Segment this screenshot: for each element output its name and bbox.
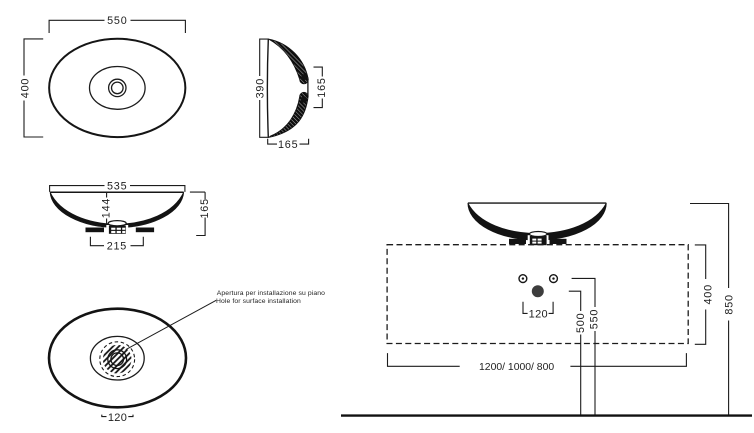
svg-text:165: 165 bbox=[316, 77, 328, 97]
svg-text:Apertura per installazione su: Apertura per installazione su piano bbox=[217, 290, 325, 297]
svg-text:550: 550 bbox=[588, 309, 600, 329]
svg-text:165: 165 bbox=[278, 139, 298, 151]
svg-text:120: 120 bbox=[108, 412, 127, 424]
svg-text:500: 500 bbox=[575, 313, 587, 333]
svg-text:165: 165 bbox=[199, 198, 211, 218]
svg-text:1200/ 1000/ 800: 1200/ 1000/ 800 bbox=[479, 362, 554, 373]
svg-text:535: 535 bbox=[107, 180, 127, 192]
svg-text:144: 144 bbox=[101, 198, 113, 218]
svg-text:Hole for surface installation: Hole for surface installation bbox=[216, 298, 301, 305]
svg-text:550: 550 bbox=[107, 15, 127, 27]
svg-text:400: 400 bbox=[20, 78, 32, 98]
svg-text:390: 390 bbox=[254, 78, 266, 98]
svg-text:850: 850 bbox=[724, 294, 736, 314]
svg-text:400: 400 bbox=[703, 284, 715, 304]
svg-text:120: 120 bbox=[529, 308, 548, 320]
svg-text:215: 215 bbox=[107, 241, 127, 253]
